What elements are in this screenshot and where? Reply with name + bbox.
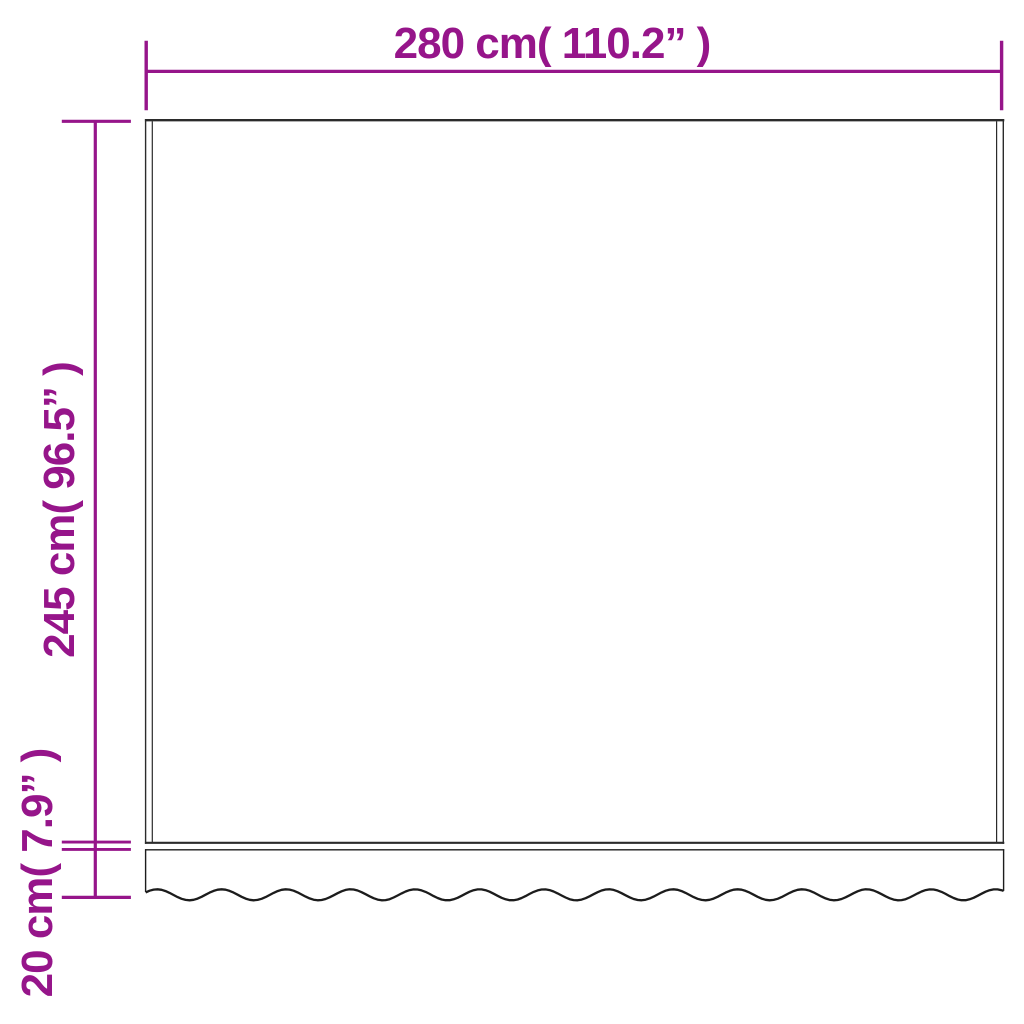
svg-text:20 cm( 7.9” ): 20 cm( 7.9” ) (13, 749, 62, 998)
svg-text:280 cm( 110.2” ): 280 cm( 110.2” ) (394, 19, 711, 68)
svg-text:245 cm( 96.5” ): 245 cm( 96.5” ) (35, 362, 84, 658)
